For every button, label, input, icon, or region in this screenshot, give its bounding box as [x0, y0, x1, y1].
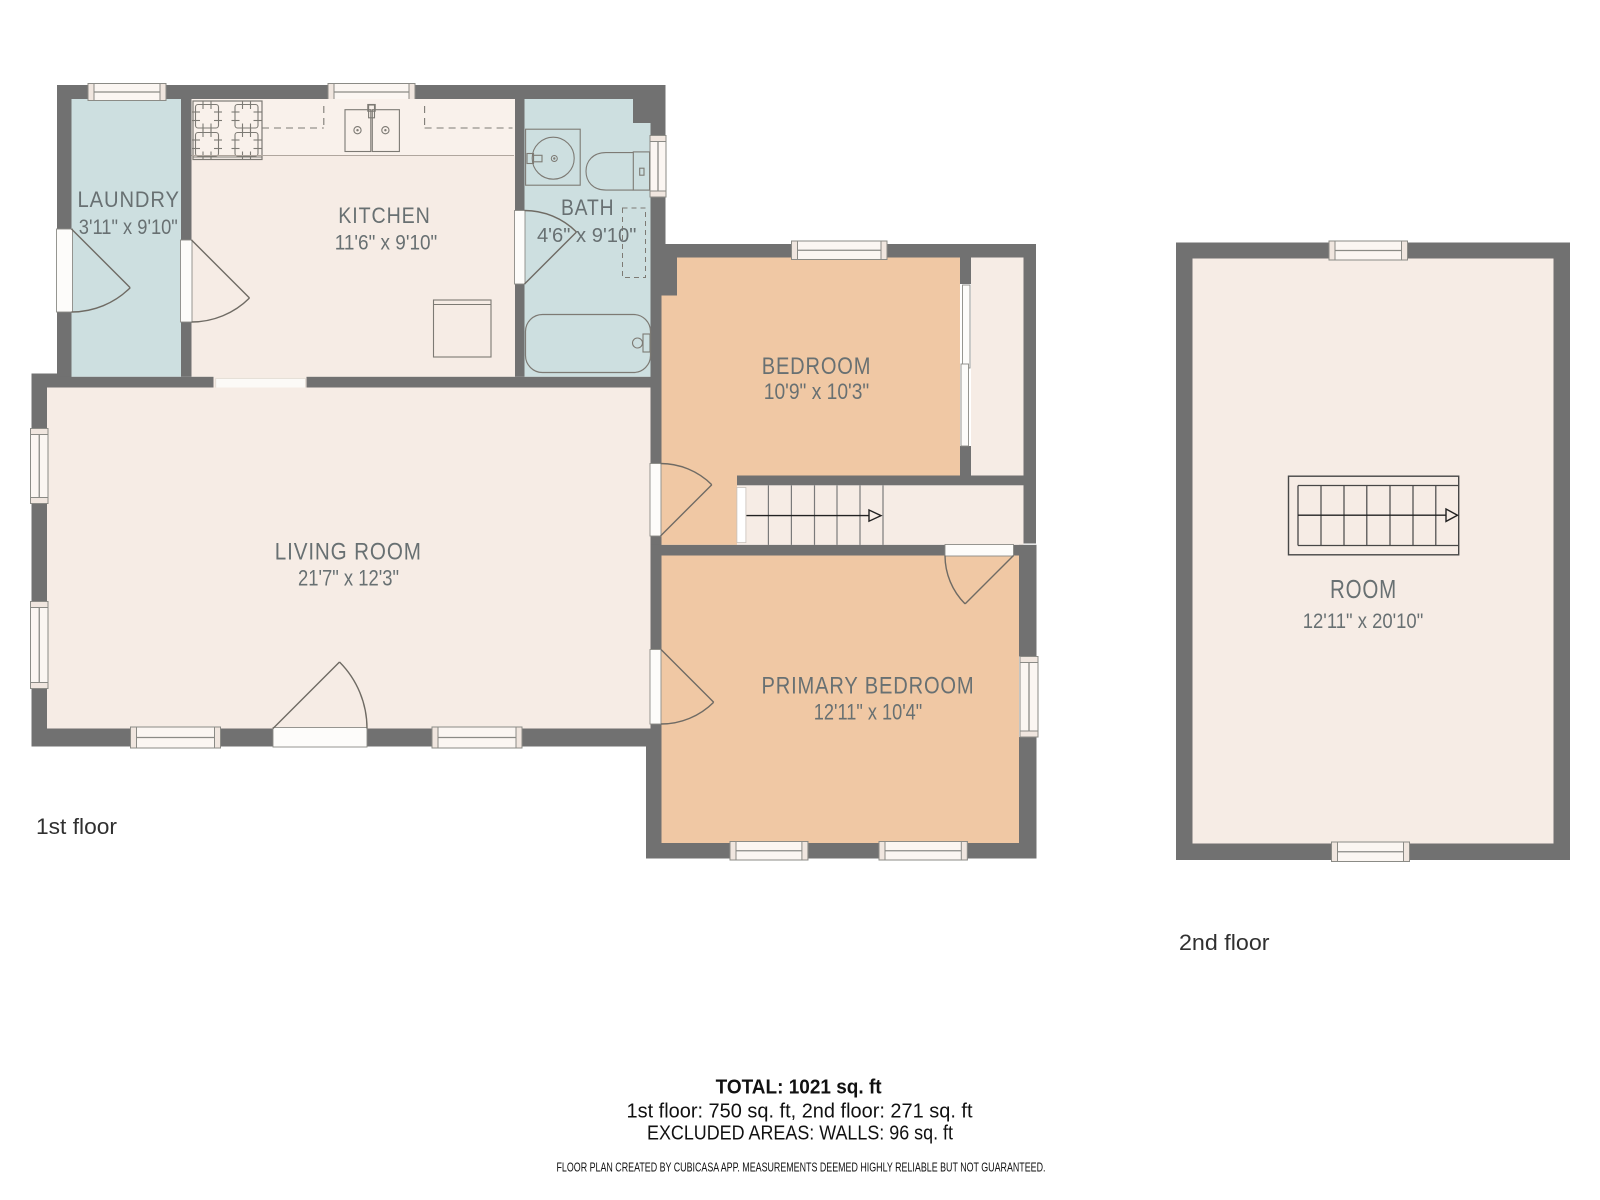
svg-text:LAUNDRY: LAUNDRY	[77, 187, 180, 212]
svg-text:2nd floor: 2nd floor	[1179, 930, 1270, 955]
svg-text:12'11" x 20'10": 12'11" x 20'10"	[1303, 609, 1424, 633]
svg-text:3'11" x 9'10": 3'11" x 9'10"	[79, 216, 178, 239]
svg-text:ROOM: ROOM	[1330, 574, 1397, 604]
svg-text:1st floor: 750 sq. ft, 2nd flo: 1st floor: 750 sq. ft, 2nd floor: 271 sq…	[627, 1100, 973, 1122]
svg-text:PRIMARY BEDROOM: PRIMARY BEDROOM	[762, 673, 975, 700]
svg-text:TOTAL: 1021 sq. ft: TOTAL: 1021 sq. ft	[716, 1077, 882, 1099]
svg-text:4'6" x 9'10": 4'6" x 9'10"	[537, 224, 637, 247]
svg-text:LIVING ROOM: LIVING ROOM	[275, 539, 422, 566]
svg-text:21'7" x 12'3": 21'7" x 12'3"	[298, 566, 399, 591]
svg-text:12'11" x 10'4": 12'11" x 10'4"	[814, 700, 923, 725]
svg-text:EXCLUDED AREAS: WALLS: 96 sq.: EXCLUDED AREAS: WALLS: 96 sq. ft	[647, 1123, 953, 1145]
svg-text:FLOOR PLAN CREATED BY CUBICASA: FLOOR PLAN CREATED BY CUBICASA APP. MEAS…	[557, 1160, 1046, 1175]
svg-text:KITCHEN: KITCHEN	[338, 203, 431, 228]
svg-text:10'9" x 10'3": 10'9" x 10'3"	[764, 379, 870, 404]
svg-text:1st floor: 1st floor	[36, 814, 118, 839]
svg-text:BEDROOM: BEDROOM	[762, 353, 872, 380]
svg-text:BATH: BATH	[561, 195, 615, 220]
svg-text:11'6" x 9'10": 11'6" x 9'10"	[335, 232, 438, 255]
